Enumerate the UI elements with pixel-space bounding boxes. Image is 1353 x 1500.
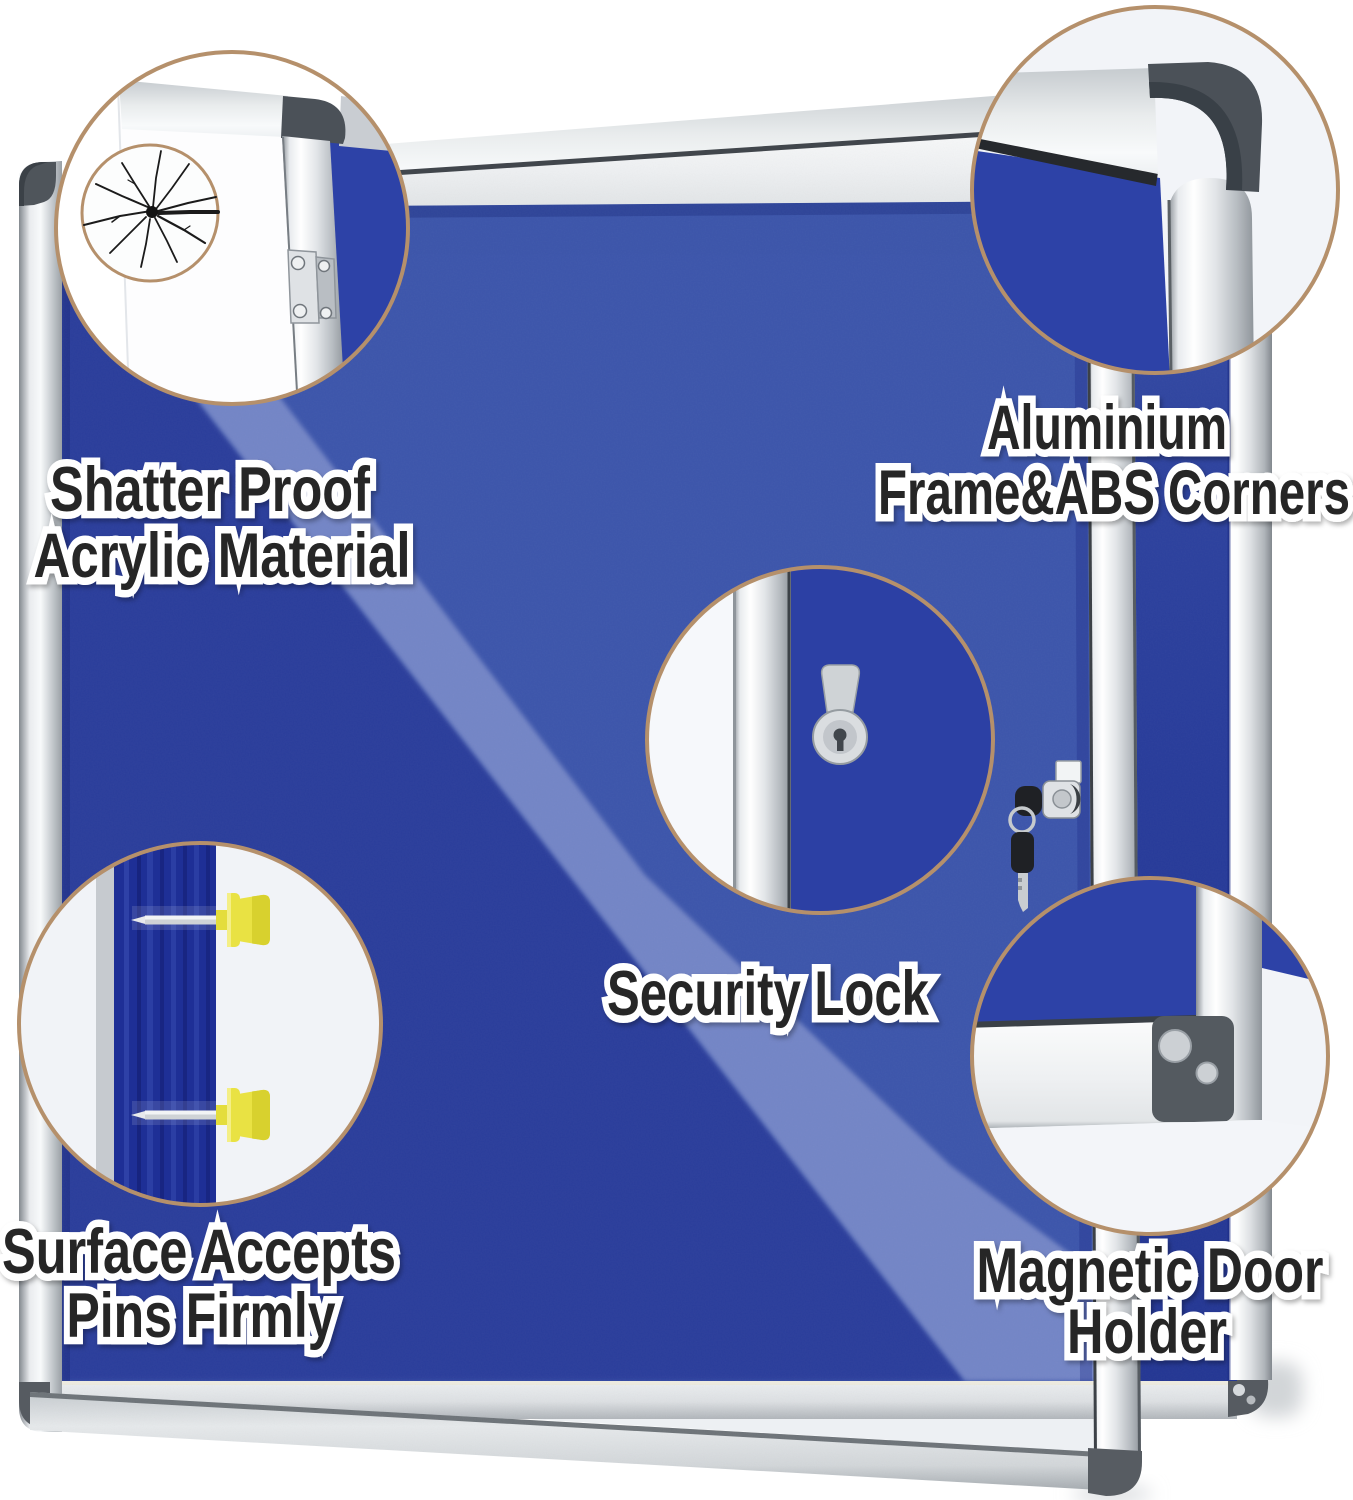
svg-text:Shatter Proof: Shatter Proof <box>50 455 371 525</box>
svg-text:Aluminium: Aluminium <box>987 393 1227 463</box>
svg-text:Security Lock: Security Lock <box>607 959 930 1029</box>
svg-text:Frame&ABS Corners: Frame&ABS Corners <box>878 458 1350 528</box>
svg-text:Acrylic Material: Acrylic Material <box>34 521 411 591</box>
svg-text:Magnetic Door: Magnetic Door <box>977 1236 1324 1306</box>
svg-text:Pins Firmly: Pins Firmly <box>67 1281 336 1351</box>
svg-text:Holder: Holder <box>1067 1297 1227 1367</box>
svg-text:Surface Accepts: Surface Accepts <box>2 1217 396 1287</box>
